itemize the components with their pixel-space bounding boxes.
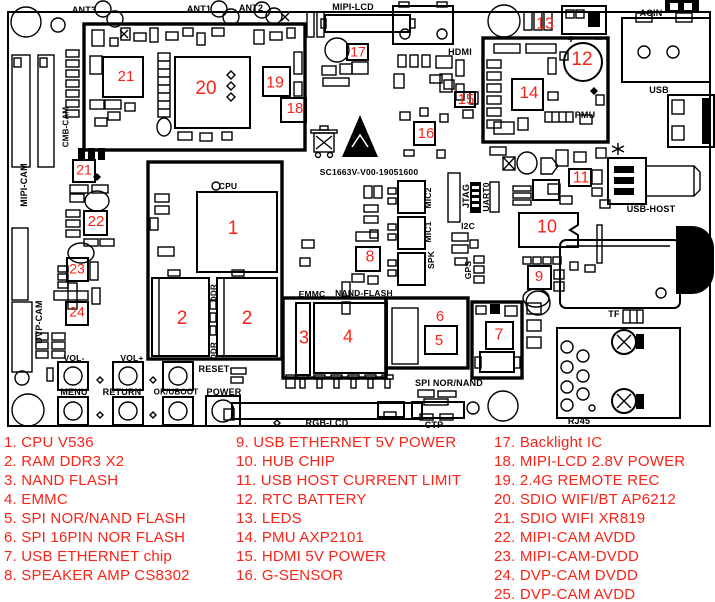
- legend-item: 21. SDIO WIFI XR819: [494, 509, 685, 528]
- legend-item: 10. HUB CHIP: [236, 452, 461, 471]
- legend-item: 4. EMMC: [4, 490, 190, 509]
- legend-item: 6. SPI 16PIN NOR FLASH: [4, 528, 190, 547]
- legend-item: 22. MIPI-CAM AVDD: [494, 528, 685, 547]
- component-marker: 19: [266, 74, 284, 92]
- legend-item: 13. LEDS: [236, 509, 461, 528]
- component-marker: 17: [350, 43, 366, 59]
- component-marker: 21: [76, 161, 92, 177]
- legend-column: 1. CPU V5362. RAM DDR3 X23. NAND FLASH4.…: [4, 433, 190, 585]
- component-marker: 23: [69, 260, 85, 276]
- component-marker: 11: [573, 169, 590, 187]
- legend-item: 8. SPEAKER AMP CS8302: [4, 566, 190, 585]
- component-marker: 16: [418, 125, 435, 142]
- component-marker: 18: [287, 100, 304, 117]
- component-marker: 7: [495, 326, 504, 344]
- legend-item: 7. USB ETHERNET chip: [4, 547, 190, 566]
- component-marker: 2: [177, 308, 188, 330]
- component-marker: 2: [242, 308, 253, 330]
- legend-item: 23. MIPI-CAM-DVDD: [494, 547, 685, 566]
- component-marker: 9: [535, 268, 543, 285]
- legend-item: 9. USB ETHERNET 5V POWER: [236, 433, 461, 452]
- legend-item: 11. USB HOST CURRENT LIMIT: [236, 471, 461, 490]
- component-marker: 8: [366, 248, 375, 266]
- legend-item: 19. 2.4G REMOTE REC: [494, 471, 685, 490]
- legend-item: 3. NAND FLASH: [4, 471, 190, 490]
- component-marker: 3: [299, 328, 309, 349]
- legend-item: 12. RTC BATTERY: [236, 490, 461, 509]
- legend-item: 2. RAM DDR3 X2: [4, 452, 190, 471]
- component-marker: 15: [458, 91, 475, 108]
- component-marker: 1: [228, 218, 239, 240]
- legend-item: 20. SDIO WIFI/BT AP6212: [494, 490, 685, 509]
- legend-item: 18. MIPI-LCD 2.8V POWER: [494, 452, 685, 471]
- component-marker: 12: [571, 49, 592, 71]
- legend-item: 16. G-SENSOR: [236, 566, 461, 585]
- legend-item: 17. Backlight IC: [494, 433, 685, 452]
- legend-item: 24. DVP-CAM DVDD: [494, 566, 685, 585]
- legend-item: 1. CPU V536: [4, 433, 190, 452]
- component-marker: 24: [69, 303, 85, 319]
- component-marker: 21: [118, 68, 135, 85]
- component-marker: 14: [520, 83, 539, 103]
- legend-item: 5. SPI NOR/NAND FLASH: [4, 509, 190, 528]
- component-marker: 5: [435, 332, 443, 349]
- component-markers: 1223456789101112131415161718192021212223…: [0, 0, 715, 432]
- legend-column: 9. USB ETHERNET 5V POWER10. HUB CHIP11. …: [236, 433, 461, 585]
- component-marker: 6: [436, 308, 444, 325]
- legend-item: 15. HDMI 5V POWER: [236, 547, 461, 566]
- component-marker: 4: [343, 327, 353, 348]
- legend-item: 14. PMU AXP2101: [236, 528, 461, 547]
- legend-item: 25. DVP-CAM AVDD: [494, 585, 685, 602]
- component-marker: 13: [536, 15, 554, 33]
- component-marker: 22: [88, 213, 105, 230]
- legend-column: 17. Backlight IC18. MIPI-LCD 2.8V POWER1…: [494, 433, 685, 602]
- component-marker: 20: [195, 78, 216, 100]
- pcb-diagram-page: ANT3ANT1ANT2MIPI-LCDHDMIACINUSBPMUCPUSC1…: [0, 0, 715, 602]
- component-marker: 10: [537, 217, 557, 238]
